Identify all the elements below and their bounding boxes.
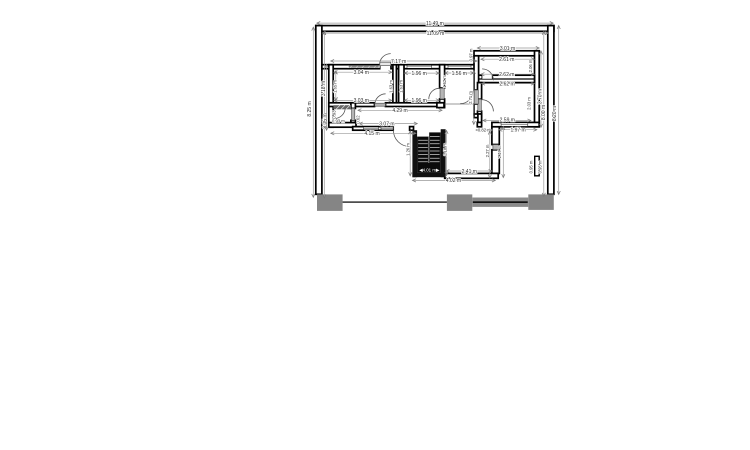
svg-text:1.26 m: 1.26 m bbox=[406, 143, 411, 156]
svg-text:8.25 m: 8.25 m bbox=[307, 101, 313, 116]
svg-text:11.09 m: 11.09 m bbox=[427, 31, 445, 37]
svg-text:2.71 m: 2.71 m bbox=[468, 91, 473, 104]
svg-text:2.27 m: 2.27 m bbox=[485, 144, 490, 157]
svg-text:1.96 m: 1.96 m bbox=[412, 98, 427, 104]
svg-text:2.06 m: 2.06 m bbox=[528, 59, 533, 72]
svg-text:2.62 m: 2.62 m bbox=[499, 72, 514, 78]
svg-text:0.95 m: 0.95 m bbox=[528, 160, 533, 173]
svg-text:0.82 m: 0.82 m bbox=[478, 128, 491, 133]
svg-text:1.96 m: 1.96 m bbox=[412, 71, 427, 77]
svg-text:2.59 m: 2.59 m bbox=[500, 118, 515, 124]
svg-text:3.07 m: 3.07 m bbox=[379, 121, 394, 127]
svg-text:4.15 m: 4.15 m bbox=[364, 131, 379, 137]
svg-text:◀4.01 m▶: ◀4.01 m▶ bbox=[419, 168, 440, 173]
svg-text:2.62 m: 2.62 m bbox=[499, 81, 514, 87]
svg-text:1.65 m: 1.65 m bbox=[333, 80, 338, 93]
svg-text:3.03 m: 3.03 m bbox=[354, 98, 369, 104]
svg-text:3.18 m: 3.18 m bbox=[321, 81, 327, 96]
svg-text:0.62: 0.62 bbox=[355, 115, 360, 124]
svg-text:4.02 m: 4.02 m bbox=[446, 178, 461, 184]
svg-text:4.29 m: 4.29 m bbox=[392, 108, 407, 114]
svg-text:2.47 m: 2.47 m bbox=[497, 145, 502, 158]
svg-text:1.63 m: 1.63 m bbox=[398, 80, 403, 93]
svg-text:1.63 m: 1.63 m bbox=[389, 80, 394, 93]
svg-text:2.18 m: 2.18 m bbox=[442, 143, 447, 156]
svg-text:3.04 m: 3.04 m bbox=[354, 70, 369, 76]
svg-text:0.97 m: 0.97 m bbox=[468, 48, 473, 61]
svg-text:0.93 m: 0.93 m bbox=[332, 118, 345, 123]
svg-text:2.41 m: 2.41 m bbox=[462, 169, 477, 175]
svg-text:7.17 m: 7.17 m bbox=[391, 59, 406, 65]
svg-text:8.00 m: 8.00 m bbox=[541, 105, 547, 120]
svg-text:3.01 m: 3.01 m bbox=[500, 46, 515, 52]
svg-text:3.70 m: 3.70 m bbox=[537, 89, 543, 104]
svg-text:2.61 m: 2.61 m bbox=[499, 57, 514, 63]
svg-text:2.03 m: 2.03 m bbox=[526, 97, 531, 110]
svg-text:0.95 m: 0.95 m bbox=[537, 160, 542, 173]
svg-text:8.20 m: 8.20 m bbox=[552, 106, 558, 121]
svg-text:1.97 m: 1.97 m bbox=[510, 128, 525, 134]
svg-text:8.05 m: 8.05 m bbox=[322, 113, 328, 128]
svg-text:0.93: 0.93 bbox=[332, 110, 337, 119]
svg-text:11.49 m: 11.49 m bbox=[426, 21, 444, 27]
svg-text:1.56 m: 1.56 m bbox=[452, 71, 467, 77]
svg-text:1.62 m: 1.62 m bbox=[442, 75, 447, 88]
